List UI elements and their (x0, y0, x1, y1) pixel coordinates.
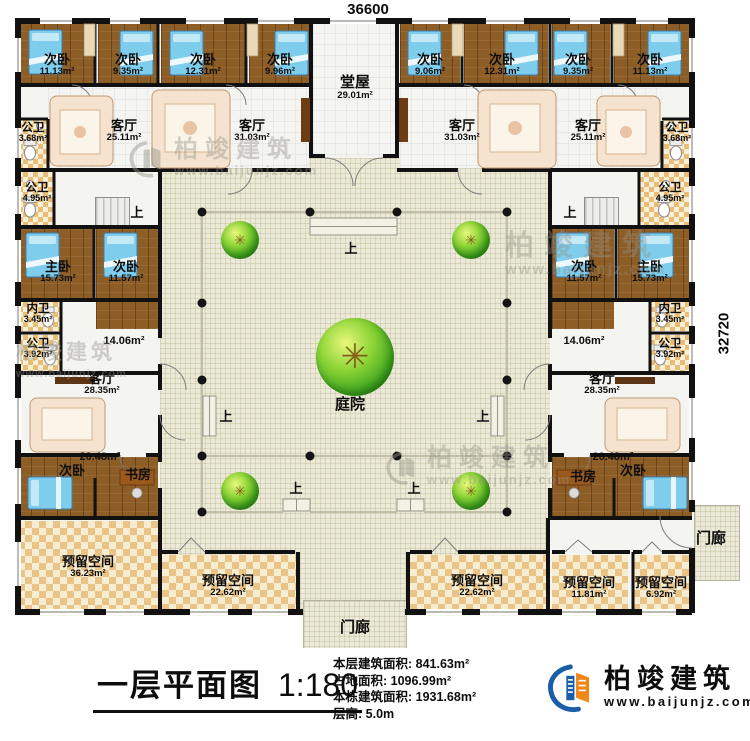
tree-small-1: ✳ (221, 221, 259, 259)
tree-small-2: ✳ (452, 221, 490, 259)
room-label: 次卧11.57m² (109, 260, 144, 284)
room-label: 客厅31.03m² (444, 119, 479, 143)
room-label: 内卫3.45m² (24, 303, 53, 325)
room-label: 次卧12.31m² (185, 53, 220, 77)
room-label: 堂屋29.01m² (337, 75, 372, 101)
windows (18, 21, 692, 612)
room-label: 20.48m² (80, 452, 121, 464)
room-label: 预留空间11.81m² (563, 576, 615, 600)
courtyard-label: 庭院 (335, 397, 365, 413)
wardrobes (84, 24, 624, 56)
room-label: 预留空间6.92m² (635, 576, 687, 600)
stat-line: 本栋建筑面积: 1931.68m² (333, 689, 476, 706)
up-marker: 上 (289, 478, 302, 497)
up-marker: 上 (563, 202, 576, 221)
room-label: 客厅31.03m² (234, 119, 269, 143)
up-marker: 上 (407, 478, 420, 497)
room-label: 客厅25.11m² (107, 119, 142, 143)
room-label: 客厅28.35m² (84, 372, 119, 396)
room-label: 14.06m² (104, 336, 145, 348)
room-label: 书房 (570, 470, 596, 484)
plan-title: 一层平面图1:180 (93, 660, 362, 713)
brand-logo: 柏竣建筑www.baijunjz.com (546, 662, 750, 714)
room-label: 次卧11.13m² (40, 53, 75, 77)
dimension-right: 32720 (716, 302, 733, 366)
brand-url: www.baijunjz.com (604, 694, 750, 709)
floor-plan-sheet: ✳ ✳ ✳ ✳ ✳ 36600 32720 次卧11.13m² 次卧9.35m²… (0, 0, 750, 741)
stat-line: 本层建筑面积: 841.63m² (333, 656, 476, 673)
room-label: 主卧15.73m² (40, 260, 75, 284)
title-block: 一层平面图1:180 本层建筑面积: 841.63m² 占地面积: 1096.9… (0, 648, 750, 741)
room-label: 书房 (125, 468, 151, 482)
brand-logo-icon (546, 662, 598, 714)
room-label: 主卧15.73m² (632, 260, 667, 284)
stat-line: 占地面积: 1096.99m² (333, 673, 476, 690)
room-label: 公卫3.68m² (19, 122, 48, 144)
room-label: 次卧9.96m² (265, 53, 295, 77)
plan-stats: 本层建筑面积: 841.63m² 占地面积: 1096.99m² 本栋建筑面积:… (333, 656, 476, 722)
up-marker: 上 (130, 202, 143, 221)
room-label: 公卫4.95m² (656, 182, 685, 204)
room-label: 客厅25.11m² (571, 119, 606, 143)
tree-big: ✳ (316, 318, 394, 396)
room-label: 次卧 (620, 464, 646, 478)
up-marker: 上 (344, 238, 357, 257)
room-label: 次卧 (59, 464, 85, 478)
dimension-top: 36600 (330, 1, 406, 18)
stat-line: 层高: 5.0m (333, 706, 476, 723)
up-marker: 上 (219, 406, 232, 425)
tree-small-4: ✳ (452, 472, 490, 510)
room-label: 预留空间36.23m² (62, 555, 114, 579)
room-label: 客厅28.35m² (584, 372, 619, 396)
room-label: 14.06m² (564, 336, 605, 348)
room-label-porch-front: 门廊 (340, 620, 370, 636)
cabinets (301, 98, 408, 142)
room-label: 公卫3.92m² (24, 338, 53, 360)
room-label: 次卧11.57m² (567, 260, 602, 284)
room-label: 内卫3.45m² (656, 303, 685, 325)
room-label: 公卫3.68m² (663, 122, 692, 144)
desks (120, 470, 591, 498)
room-label: 预留空间22.62m² (202, 574, 254, 598)
room-label: 次卧9.35m² (563, 53, 593, 77)
room-label: 次卧12.31m² (484, 53, 519, 77)
room-label: 次卧9.35m² (113, 53, 143, 77)
room-label: 公卫4.95m² (23, 182, 52, 204)
room-label-porch-right: 门廊 (696, 531, 726, 547)
room-label: 次卧9.06m² (415, 53, 445, 77)
room-label: 公卫3.92m² (656, 338, 685, 360)
tree-small-3: ✳ (221, 472, 259, 510)
up-marker: 上 (476, 406, 489, 425)
brand-name: 柏竣建筑 (604, 664, 736, 694)
walls (15, 18, 692, 615)
plan-title-text: 一层平面图 (97, 668, 262, 703)
room-label: 预留空间22.62m² (451, 574, 503, 598)
room-label: 次卧11.13m² (633, 53, 668, 77)
